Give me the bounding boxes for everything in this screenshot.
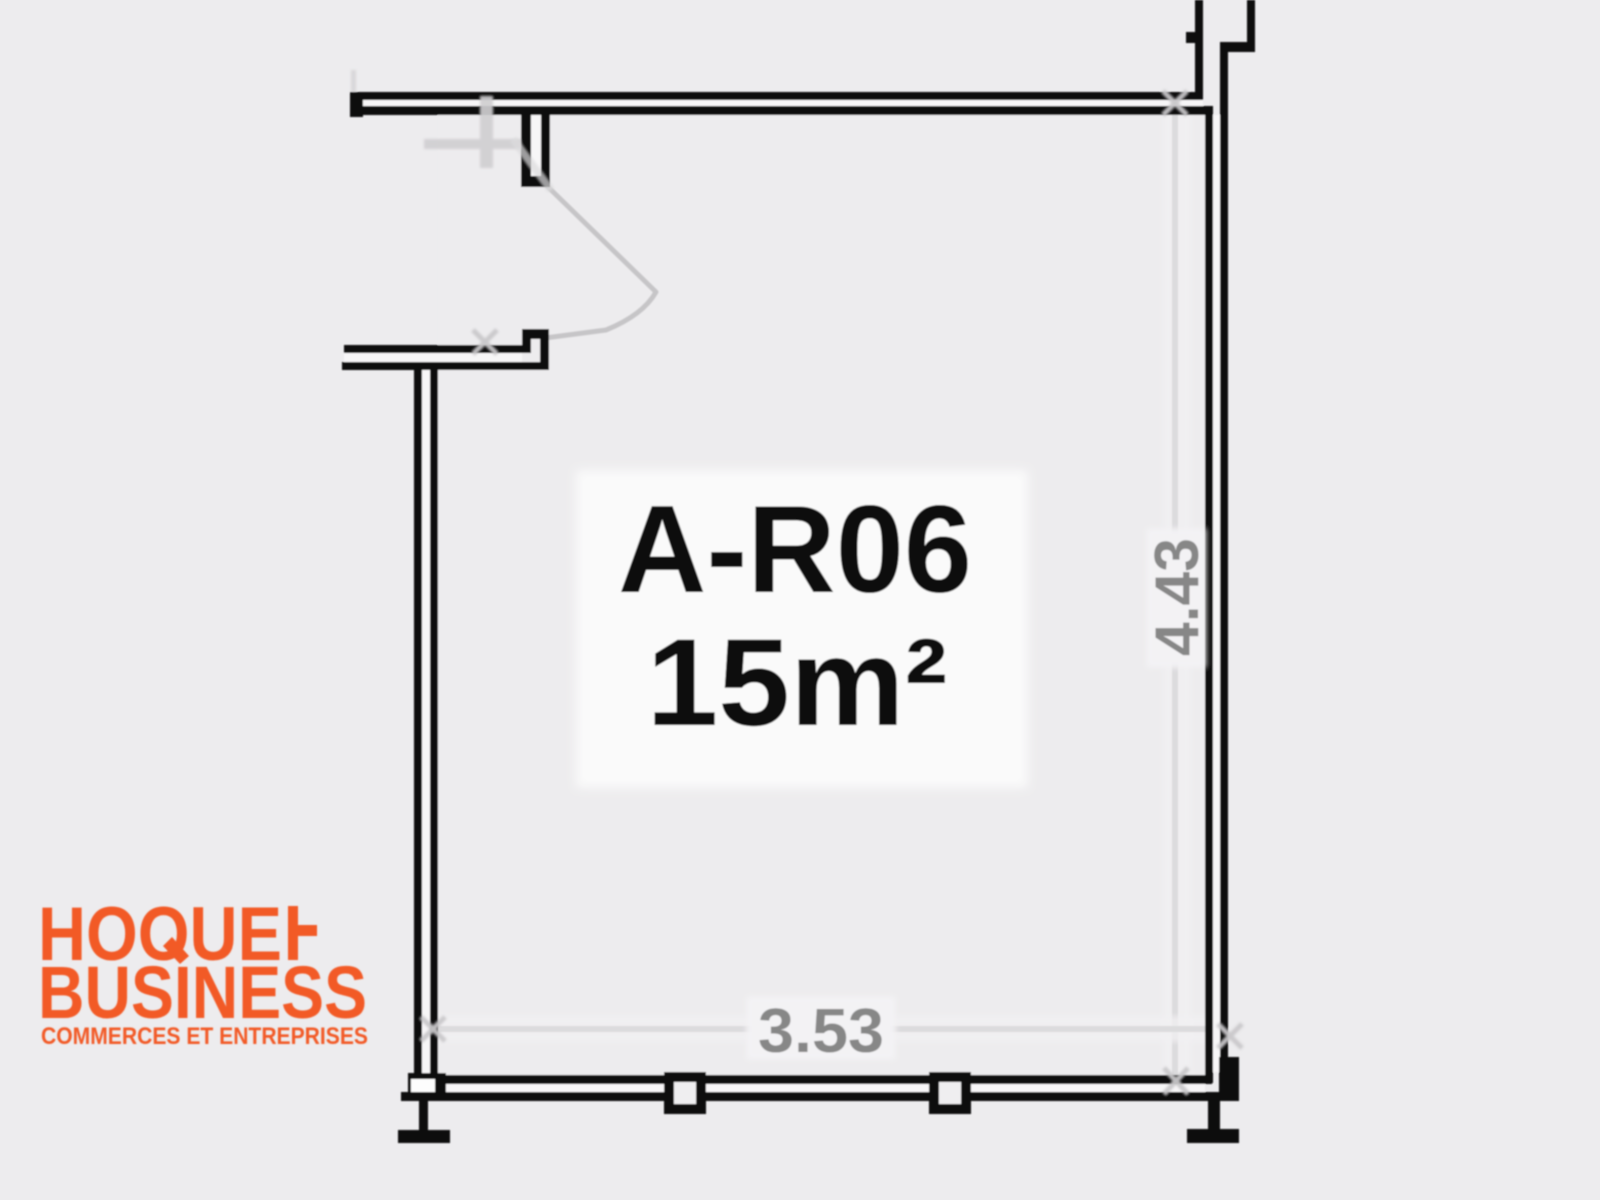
svg-text:A-R06: A-R06 (618, 481, 972, 619)
svg-text:COMMERCES ET ENTREPRISES: COMMERCES ET ENTREPRISES (41, 1023, 368, 1050)
svg-text:BUSINESS: BUSINESS (38, 951, 367, 1034)
svg-text:3.53: 3.53 (758, 997, 884, 1066)
svg-text:15m²: 15m² (647, 614, 948, 752)
svg-text:4.43: 4.43 (1143, 538, 1212, 656)
